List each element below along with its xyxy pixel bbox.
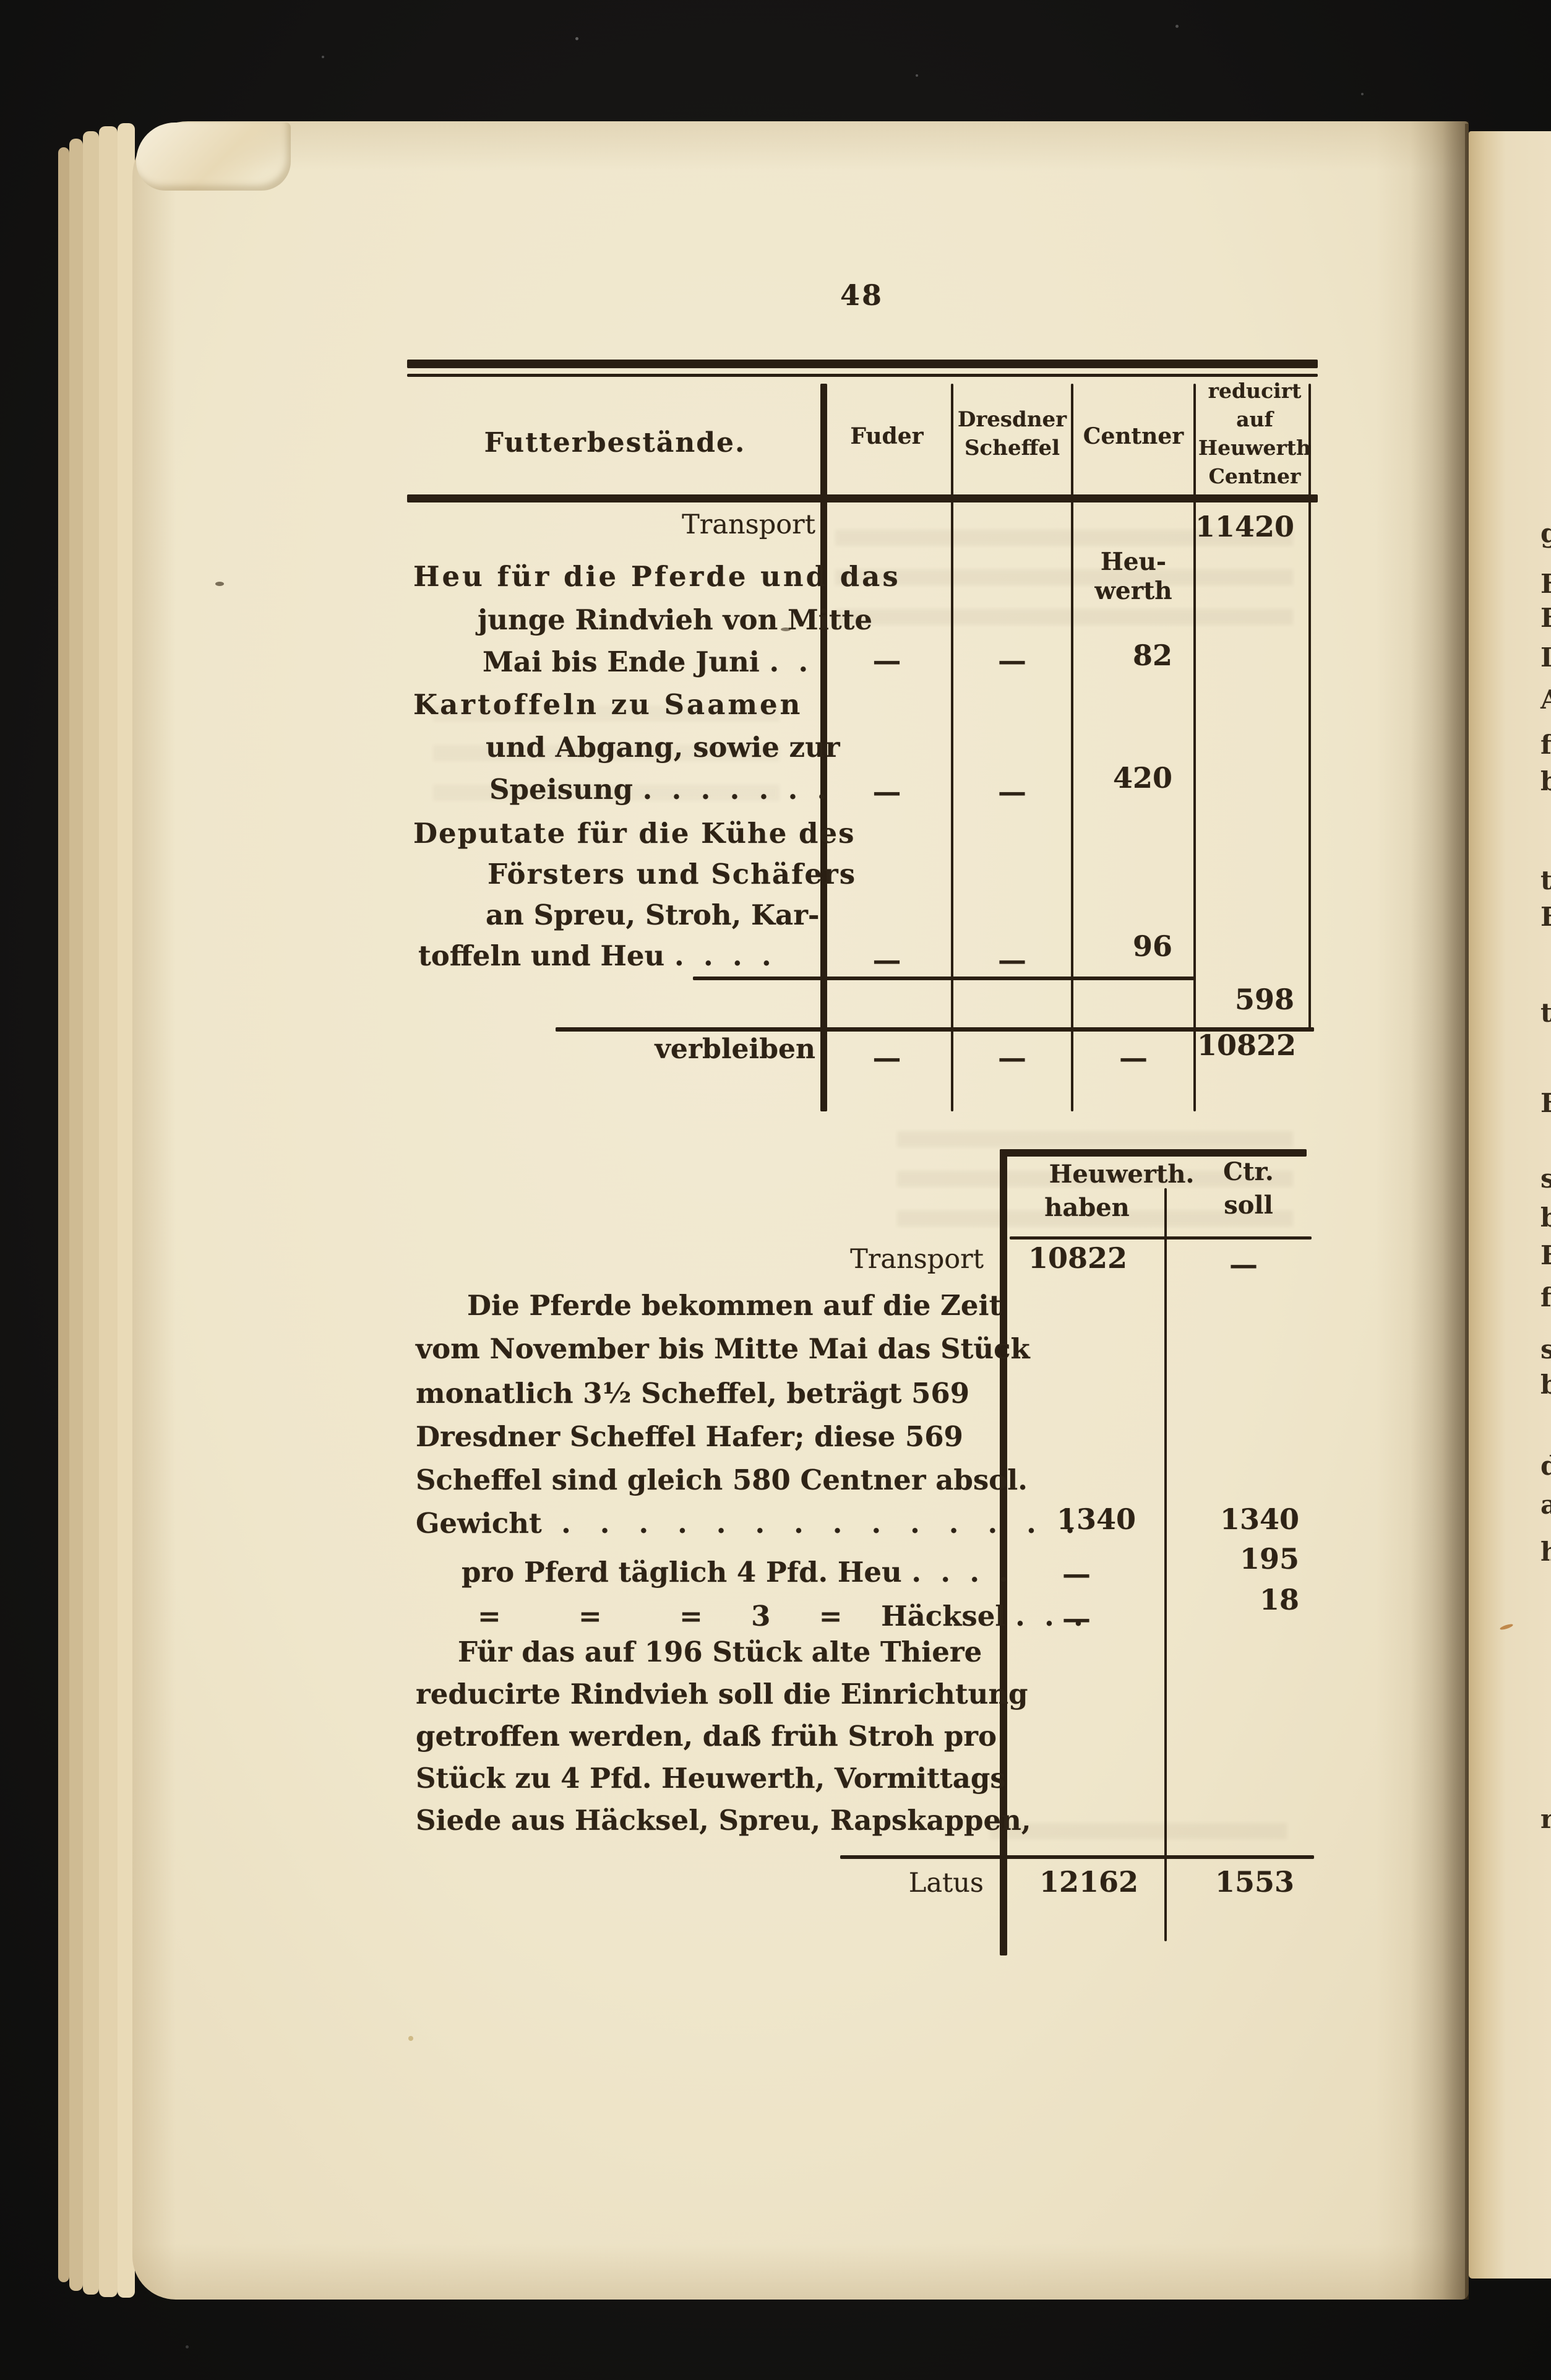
text-fragment: d — [1540, 1451, 1551, 1481]
text-fragment: f — [1540, 1282, 1551, 1313]
text-fragment: I — [1540, 642, 1551, 673]
t2-para1-line2: vom November bis Mitte Mai das Stück — [416, 1332, 1030, 1365]
t2-latus-rule — [840, 1855, 1314, 1859]
dust-speck — [1175, 25, 1179, 28]
t1-item1-line1: Heu für die Pferde und das — [413, 560, 901, 593]
t1-top-rule-thick — [407, 360, 1318, 368]
text-fragment: b — [1540, 1202, 1551, 1233]
t1-item2-line1: Kartoffeln zu Saamen — [413, 688, 802, 721]
t2-haecksel-haben-dash: — — [1027, 1602, 1126, 1635]
t1-item1-centner-value: 82 — [1080, 639, 1172, 672]
t1-verbleiben-scheffel-dash: — — [953, 1041, 1071, 1074]
text-fragment: b — [1540, 766, 1551, 796]
t2-para1-line3: monatlich 3½ Scheffel, beträgt 569 — [416, 1377, 969, 1410]
t1-item1-scheffel-dash: — — [953, 644, 1071, 677]
t1-verbleiben-fuder-dash: — — [823, 1041, 951, 1074]
paper-speck — [408, 2036, 413, 2041]
t1-item3-scheffel-dash: — — [953, 943, 1071, 977]
t2-para2-line3: getroffen werden, daß früh Stroh pro — [416, 1720, 997, 1753]
text-fragment: r — [1540, 1804, 1551, 1834]
paper-speck — [215, 582, 224, 586]
t1-verbleiben-label: verbleiben — [557, 1033, 815, 1065]
text-fragment: s — [1540, 1163, 1551, 1194]
text-fragment: a — [1540, 1490, 1551, 1520]
t2-heu-soll: 195 — [1175, 1542, 1299, 1576]
text-fragment: t — [1540, 865, 1551, 895]
t1-vline-fuder — [951, 384, 953, 1111]
t2-top-rule — [1000, 1149, 1307, 1157]
dust-speck — [186, 2345, 189, 2348]
dust-speck — [322, 56, 324, 58]
text-fragment: E — [1540, 902, 1551, 932]
t2-transport-haben: 10822 — [1003, 1241, 1127, 1275]
t1-item2-scheffel-dash: — — [953, 775, 1071, 808]
page-number: 48 — [800, 278, 924, 312]
t2-para1-line4: Dresdner Scheffel Hafer; diese 569 — [416, 1420, 963, 1453]
t1-header-reducirt-line4: Centner — [1196, 464, 1313, 488]
t1-item3-line2: Försters und Schäfers — [488, 858, 856, 890]
scanned-book-photo: 48 Futterbestände. Fuder Dresdner Scheff… — [0, 0, 1551, 2380]
t1-header-reducirt-line3: Heuwerth — [1196, 436, 1313, 460]
t1-header-reducirt-line2: auf — [1196, 407, 1313, 431]
t2-header-underline — [1010, 1236, 1312, 1240]
t1-item3-line4: toffeln und Heu . . . . — [418, 939, 771, 972]
t1-subtotal-rule — [693, 977, 1195, 980]
t1-header-fuder: Fuder — [823, 423, 951, 449]
facing-page — [1469, 131, 1551, 2279]
dust-speck — [1361, 93, 1364, 95]
t2-heu-haben-dash: — — [1027, 1557, 1126, 1590]
text-fragment: t — [1540, 998, 1551, 1028]
t2-heu-label: pro Pferd täglich 4 Pfd. Heu . . . . — [462, 1556, 1008, 1589]
text-fragment: H — [1540, 569, 1551, 599]
t1-subtotal-value: 598 — [1171, 983, 1294, 1016]
t2-para2-line2: reducirte Rindvieh soll die Einrichtung — [416, 1678, 1028, 1710]
t2-column-divider — [1164, 1188, 1167, 1941]
t2-para1-line6-gewicht: Gewicht . . . . . . . . . . . . . . — [416, 1507, 1075, 1540]
t1-transport-value: 11420 — [1171, 510, 1294, 543]
t2-latus-label: Latus — [798, 1868, 984, 1899]
t1-header-reducirt-line1: reducirt — [1196, 379, 1313, 403]
text-fragment: E — [1540, 1088, 1551, 1118]
t1-top-rule-thin — [407, 374, 1318, 377]
t1-header-dresdner-line2: Scheffel — [953, 436, 1071, 460]
t2-haecksel-label: = = = 3 = Häcksel . . . — [478, 1600, 1083, 1632]
t1-item3-fuder-dash: — — [823, 943, 951, 977]
t1-item3-line1: Deputate für die Kühe des — [413, 817, 855, 850]
t2-header-haben: haben — [1010, 1193, 1164, 1222]
text-fragment: g — [1540, 518, 1551, 548]
t2-header-ctr: Ctr. — [1183, 1157, 1314, 1186]
t1-heuwerth-note-line2: werth — [1073, 577, 1193, 605]
t2-transport-label: Transport — [761, 1244, 984, 1275]
page-edge-stack-4 — [99, 126, 118, 2297]
t1-item2-line2: und Abgang, sowie zur — [486, 731, 840, 764]
t1-item3-line3: an Spreu, Stroh, Kar- — [486, 899, 820, 931]
t2-header-soll: soll — [1183, 1191, 1314, 1220]
gutter-shadow — [1411, 121, 1469, 2300]
text-fragment: s — [1540, 1334, 1551, 1365]
t2-para2-line1: Für das auf 196 Stück alte Thiere — [458, 1636, 982, 1668]
page-edge-stack-3 — [83, 131, 99, 2295]
t2-gewicht-haben: 1340 — [1012, 1503, 1136, 1536]
t1-header-bottom-rule — [407, 494, 1318, 502]
t2-latus-soll: 1553 — [1171, 1865, 1294, 1899]
t1-verbleiben-reducirt-value: 10822 — [1160, 1028, 1296, 1062]
t2-para1-line1: Die Pferde bekommen auf die Zeit — [467, 1289, 1002, 1322]
t2-transport-soll-dash: — — [1194, 1248, 1293, 1281]
t1-vline-scheffel — [1071, 384, 1073, 1111]
t1-item3-centner-value: 96 — [1080, 929, 1172, 963]
t2-para2-line4: Stück zu 4 Pfd. Heuwerth, Vormittags — [416, 1762, 1006, 1795]
t2-latus-haben: 12162 — [1015, 1865, 1138, 1899]
bleed-through — [990, 1823, 1287, 1850]
t1-item1-line2: junge Rindvieh von Mitte — [478, 603, 872, 636]
t1-header-futterbestaende: Futterbestände. — [410, 427, 820, 459]
t1-header-centner: Centner — [1073, 423, 1193, 449]
page-corner-curl — [136, 123, 291, 191]
t1-item1-fuder-dash: — — [823, 644, 951, 677]
page-edge-stack-2 — [69, 139, 83, 2291]
t1-heuwerth-note-line1: Heu- — [1073, 548, 1193, 576]
dust-speck — [916, 74, 918, 77]
t1-item1-line3: Mai bis Ende Juni . . — [483, 645, 808, 678]
t2-gewicht-soll: 1340 — [1175, 1503, 1299, 1536]
page-edge-stack-1 — [58, 147, 69, 2282]
bleed-through — [835, 530, 1293, 629]
t2-para1-line5: Scheffel sind gleich 580 Centner absol. — [416, 1464, 1028, 1496]
text-fragment: b — [1540, 1369, 1551, 1400]
t2-para2-line5: Siede aus Häcksel, Spreu, Rapskappen, — [416, 1804, 1031, 1837]
text-fragment: h — [1540, 1537, 1551, 1567]
t1-item2-fuder-dash: — — [823, 775, 951, 808]
t1-transport-label: Transport — [495, 509, 815, 540]
t1-item2-centner-value: 420 — [1080, 761, 1172, 795]
t1-header-dresdner-line1: Dresdner — [953, 407, 1071, 432]
text-fragment: E — [1540, 603, 1551, 633]
text-fragment: A — [1540, 684, 1551, 715]
t1-item2-line3: Speisung . . . . . . . — [489, 773, 827, 806]
text-fragment: f — [1540, 730, 1551, 760]
dust-speck — [575, 37, 578, 40]
text-fragment: E — [1540, 1240, 1551, 1270]
t2-haecksel-soll: 18 — [1175, 1583, 1299, 1616]
